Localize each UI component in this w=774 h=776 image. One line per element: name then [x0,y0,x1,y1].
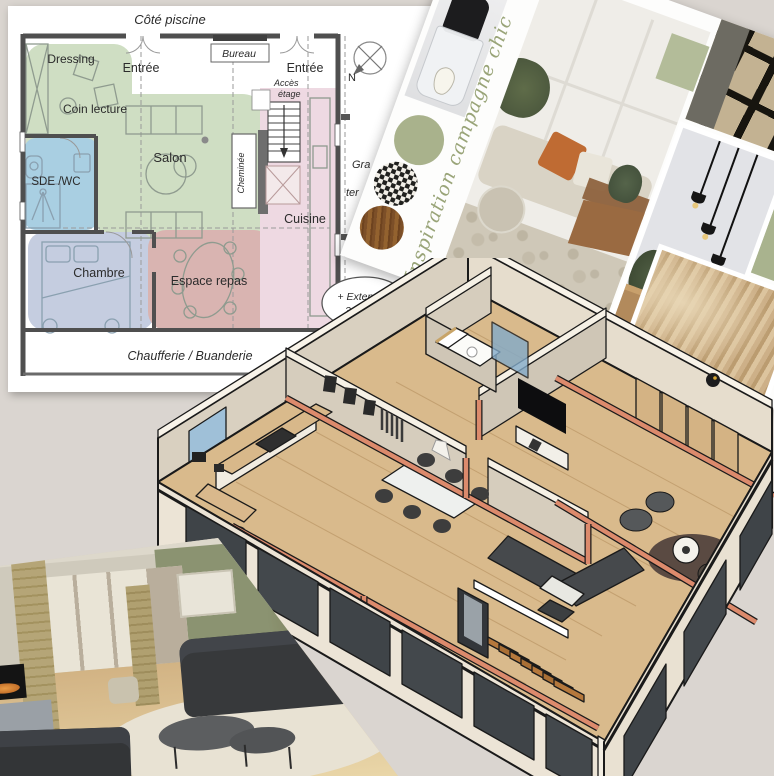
pendant-bulb [701,233,709,241]
label-compass-n: N [348,72,356,84]
window-glyph [335,124,340,146]
design-presentation-collage: Côté piscine Dressing Entrée Bureau Entr… [0,0,774,776]
tremie-box [266,166,300,204]
column-dot [202,137,209,144]
swatch-wood [354,199,410,255]
bar-stool [107,676,139,705]
label-cheminee: Cheminée [236,152,246,193]
fireplace [0,664,27,701]
label-acces-1: Accès [273,78,299,88]
window-daylight [42,566,190,674]
wall-panel-line [544,0,598,141]
label-terrace-frag2: ter [346,187,360,199]
robot-vacuum [706,373,720,387]
pendant-bulb [691,202,699,210]
robot-vacuum-light [713,376,717,380]
compass-icon [353,42,386,75]
label-coin-lecture: Coin lecture [63,102,127,116]
terrace-post [341,114,350,120]
window-glyph [20,132,25,152]
pendant-cord [699,141,721,196]
label-cuisine: Cuisine [284,212,326,226]
window-glyph [335,234,340,256]
label-dressing: Dressing [47,52,94,66]
label-salon: Salon [153,150,186,165]
label-sde-wc: SDE /WC [31,176,80,188]
label-entree-left: Entrée [123,61,160,75]
pendant-cord [719,154,759,258]
door-arc-entree-right [280,36,314,53]
window-glyph [20,202,25,220]
label-acces-2: étage [278,89,301,99]
door-arc-entree-left [126,36,160,53]
plan-title: Côté piscine [134,12,206,27]
label-chambre: Chambre [73,266,124,280]
label-bureau: Bureau [222,48,256,60]
wall-frame [177,569,237,618]
wall-panel-line [600,19,654,161]
label-terrace-frag1: Gra [352,159,370,171]
label-entree-right: Entrée [287,61,324,75]
charcoal-sofa [0,727,132,776]
lamp-bulb [430,64,458,97]
